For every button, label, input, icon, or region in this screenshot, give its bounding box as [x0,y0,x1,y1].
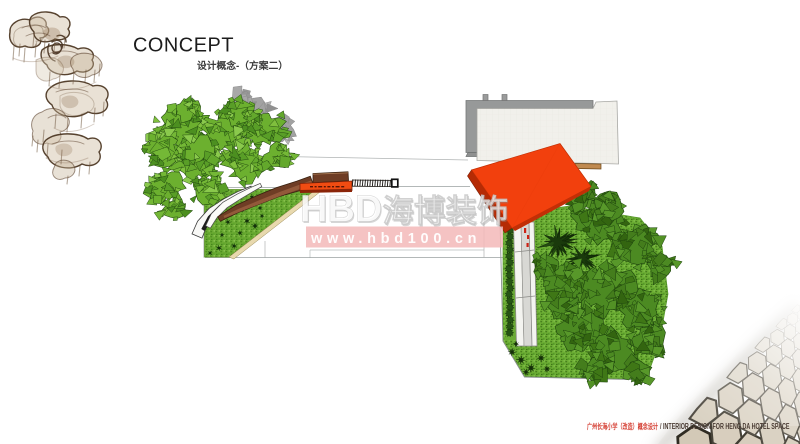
svg-text:HBD海博装饰: HBD海博装饰 [300,189,508,231]
svg-text:CONCEPT: CONCEPT [133,34,234,57]
svg-text:www.hbd100.cn: www.hbd100.cn [310,231,481,247]
svg-text:广州长海小学（改造）概念设计: 广州长海小学（改造）概念设计 [587,422,659,431]
svg-text:设计概念-（方案二）: 设计概念-（方案二） [197,59,288,72]
svg-text:/ INTERIOR DESIGN FOR HENG DA: / INTERIOR DESIGN FOR HENG DA HOTEL SPAC… [660,422,790,431]
